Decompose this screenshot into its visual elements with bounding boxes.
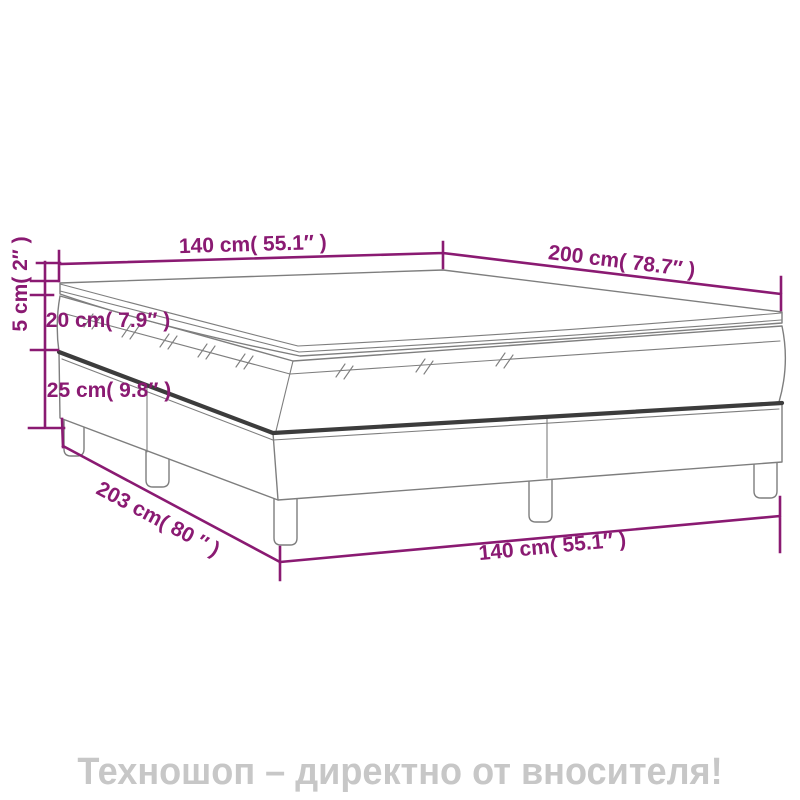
dimension-width-top-label: 140 cm( 55.1″ ) <box>179 231 327 258</box>
dimension-mattress-height-label: 20 cm( 7.9″ ) <box>46 309 170 332</box>
dimension-length-bottom-label: 203 cm( 80 ″ ) <box>93 477 224 561</box>
dimension-width-bottom-label: 140 cm( 55.1″ ) <box>478 528 627 565</box>
dimension-base-height-label: 25 cm( 9.8″ ) <box>47 379 171 402</box>
brand-banner-text: Техношоп – директно от вносителя! <box>77 751 722 793</box>
brand-banner: Техношоп – директно от вносителя! <box>20 749 780 795</box>
dimension-topper-height-label: 5 cm( 2″ ) <box>9 236 32 331</box>
bed-dimension-diagram: 140 cm( 55.1″ ) 200 cm( 78.7″ ) 5 cm( 2″… <box>0 0 800 800</box>
